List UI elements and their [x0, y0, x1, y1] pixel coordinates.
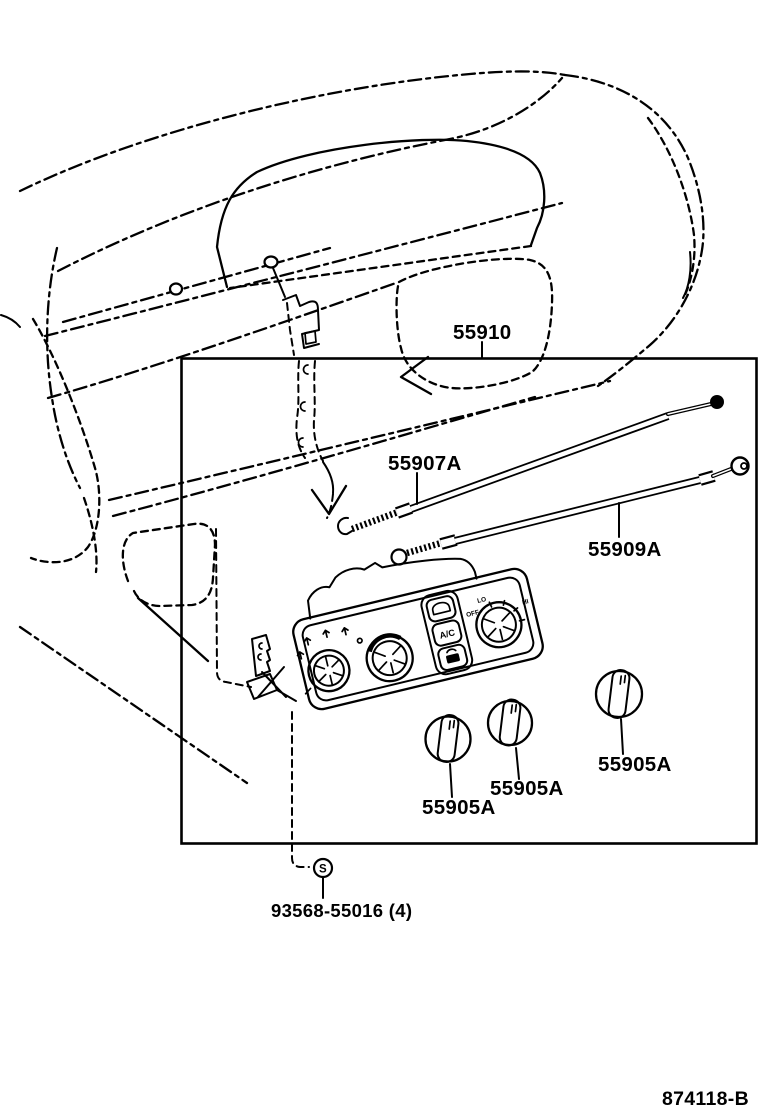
knob-1: [426, 714, 471, 797]
bracket-edge-dashed: [287, 303, 294, 355]
bracket-tail: [323, 462, 333, 493]
left-edge-arc: [1, 315, 20, 327]
clip-icon: [299, 365, 309, 447]
knob-grip: [608, 669, 631, 719]
cowl-crease: [63, 248, 330, 322]
button-stack: A/C: [419, 589, 474, 676]
v-mark-right: [401, 357, 431, 394]
console-diagonal: [20, 627, 247, 783]
outer-top-line: [20, 71, 565, 191]
fan-lo-label: LO: [477, 596, 487, 605]
cable-eyelet-left: [392, 550, 407, 565]
part-callouts: 55910 55907A 55909A 55905A 55905A 55905A: [388, 321, 672, 819]
fan-ticks: [489, 595, 524, 626]
grip-ridges: [620, 675, 625, 684]
recirculation-icon: [446, 653, 461, 664]
bracket-strip-right: [314, 361, 323, 461]
harness-bracket: [273, 268, 333, 518]
heater-control-unit: A/C OFF LO HI: [280, 529, 546, 712]
grommet-right: [265, 257, 278, 268]
right-lobe-line: [565, 75, 703, 386]
panel-side-bracket: [247, 635, 296, 701]
fan-hi-label: HI: [521, 598, 529, 606]
screw-callout: S 93568-55016 (4): [271, 859, 412, 921]
right-inner-arc: [648, 118, 695, 297]
parts-diagram: A/C OFF LO HI: [0, 0, 760, 1112]
part-label-knob-2[interactable]: 55905A: [490, 777, 564, 800]
part-label-knob-1[interactable]: 55905A: [422, 796, 496, 819]
connector-clips: [258, 643, 262, 660]
steering-opening: [31, 319, 99, 562]
crease-lower: [48, 283, 396, 398]
mode-knob-opening: [292, 623, 372, 698]
part-label-55909a[interactable]: 55909A: [588, 538, 662, 561]
inner-top-line: [58, 78, 562, 271]
grip-ridges: [511, 704, 516, 713]
knob-grip: [437, 714, 460, 763]
part-label-55907a[interactable]: 55907A: [388, 452, 462, 475]
ac-button-label: A/C: [438, 627, 456, 640]
fan-knob-opening: OFF LO HI: [463, 587, 538, 654]
vent-mode-button[interactable]: [425, 595, 456, 623]
a-pillar-line: [47, 248, 80, 488]
glovebox-outline: [123, 524, 215, 606]
cable-hook-end: [338, 518, 352, 534]
knob-3: [596, 669, 642, 754]
leader-dash-left: [216, 529, 251, 687]
grommet-left: [170, 284, 182, 295]
knob-grip: [499, 699, 521, 747]
mount-leader-dashes: [216, 529, 309, 867]
console-diagonal-short: [138, 598, 208, 661]
screw-symbol: S: [319, 864, 327, 876]
grip-ridges: [449, 720, 454, 729]
leader-line: [516, 748, 519, 779]
crease-upper: [45, 203, 562, 336]
v-mark-left: [312, 486, 346, 514]
cable-coil: [352, 512, 398, 529]
knob-2: [488, 699, 532, 779]
part-label-55910[interactable]: 55910: [453, 321, 512, 344]
mode-dot-icon: [357, 638, 363, 644]
cable-ring-end: [732, 458, 749, 475]
cable-coil: [407, 543, 441, 553]
connector-body: [252, 635, 270, 676]
cable-end-cap: [710, 395, 724, 409]
part-label-knob-3[interactable]: 55905A: [598, 753, 672, 776]
vent-mode-icon: [431, 601, 450, 615]
leader-line: [450, 764, 452, 797]
figure-code: 874118-B: [662, 1088, 749, 1110]
reinforce-diagonal-2: [113, 397, 535, 516]
part-label-screw[interactable]: 93568-55016 (4): [271, 900, 412, 921]
leader-line: [621, 719, 623, 754]
dashboard-outline: [1, 71, 703, 783]
temperature-knob-opening: [362, 630, 417, 685]
reinforce-diagonal-1: [109, 381, 610, 500]
